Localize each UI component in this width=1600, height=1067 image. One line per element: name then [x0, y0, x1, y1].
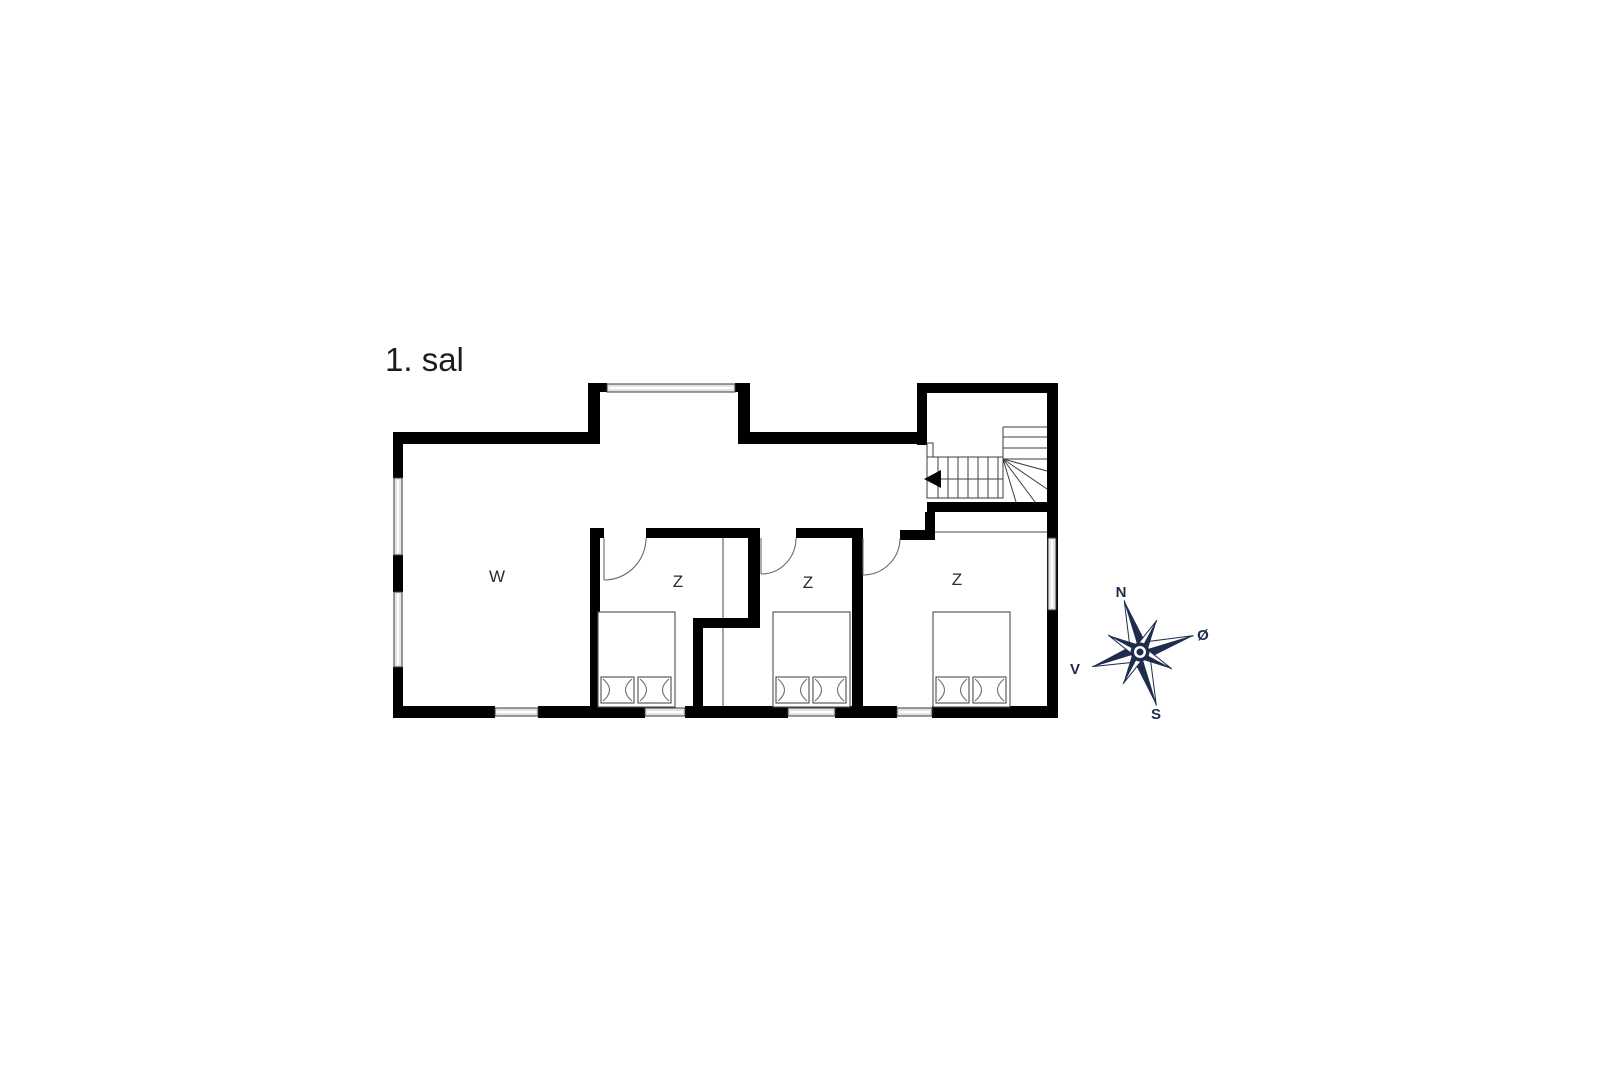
window-left-upper [394, 478, 402, 555]
bed-icon-bedroom2 [773, 612, 850, 707]
wall-dormer-right [738, 383, 750, 444]
stair-treads-lower [938, 457, 998, 498]
wall-bottom-seg2 [538, 706, 645, 718]
staircase [924, 427, 1047, 502]
wall-divider-1-2-jut [693, 618, 760, 628]
wall-divider-2-3 [852, 528, 863, 706]
stair-winder-fan [1003, 459, 1047, 502]
compass-star-icon [1076, 584, 1210, 720]
room-label-bedroom1: Z [673, 572, 683, 591]
wall-bedrooms-top-b [646, 528, 750, 538]
window-left-lower [394, 592, 402, 667]
bed-icon-bedroom3 [933, 612, 1010, 707]
wall-bottom-seg5 [932, 706, 1058, 718]
wall-bottom-seg1 [393, 706, 495, 718]
bed-icon-bedroom1 [598, 612, 675, 707]
room-label-bedroom3: Z [952, 570, 962, 589]
stair-entry-newel [927, 443, 933, 457]
floor-plan-page: 1. sal W Z Z Z [0, 0, 1600, 1067]
wall-left-seg1 [393, 432, 403, 478]
room-label-living: W [489, 567, 505, 586]
wall-bottom-seg4 [835, 706, 897, 718]
wall-dormer-left-corner [588, 383, 607, 392]
wall-dormer-left [588, 383, 600, 444]
wall-top-center [750, 432, 917, 444]
window-bottom-bedroom1 [645, 708, 685, 716]
room-label-bedroom2: Z [803, 573, 813, 592]
wall-left-seg2 [393, 555, 403, 592]
door-bedroom3 [863, 538, 900, 575]
window-bottom-bedroom2 [788, 708, 835, 716]
wall-divider-1-2-lower [693, 618, 703, 706]
door-bedroom2 [761, 538, 796, 574]
wall-divider-1-2-upper [748, 528, 760, 628]
window-dormer-top [607, 384, 735, 392]
floor-plan-canvas: 1. sal W Z Z Z [0, 0, 1600, 1067]
door-bedroom1 [604, 538, 646, 580]
wall-top-left [393, 432, 588, 444]
floor-title: 1. sal [385, 341, 464, 378]
compass-label-west: V [1070, 661, 1080, 678]
wall-bottom-seg3 [685, 706, 788, 718]
wall-stair-top [917, 383, 1058, 393]
beds [598, 612, 1010, 707]
window-right [1048, 538, 1056, 610]
window-bottom-living [495, 708, 538, 716]
compass-label-east: Ø [1197, 627, 1209, 644]
compass-label-south: S [1151, 706, 1161, 723]
wall-stair-bottom [927, 502, 1058, 512]
compass-rose: N Ø S V [1070, 584, 1210, 723]
wall-stair-left [917, 393, 927, 445]
compass-label-north: N [1116, 584, 1127, 601]
stair-treads-upper [1003, 427, 1047, 459]
wall-bedrooms-top-c [796, 528, 852, 538]
wall-below-stair [925, 512, 935, 532]
window-bottom-bedroom3 [897, 708, 932, 716]
